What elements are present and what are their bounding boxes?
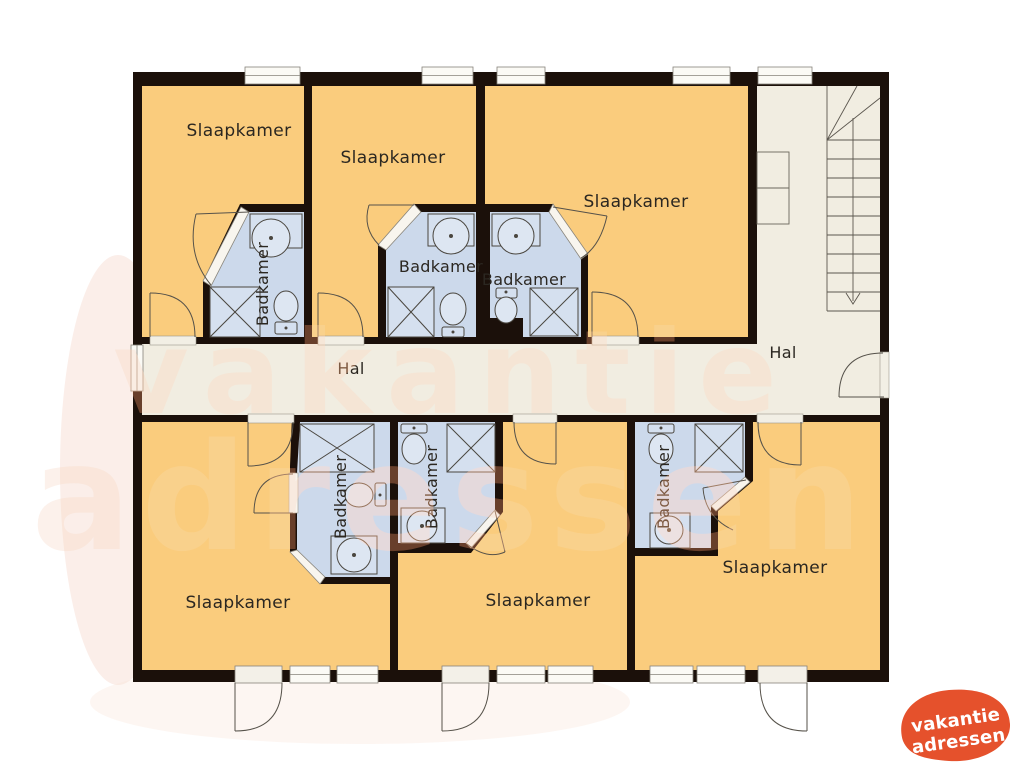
- floorplan-page: Slaapkamer Slaapkamer Slaapkamer Slaapka…: [0, 0, 1024, 768]
- bedroom-5-label: Slaapkamer: [485, 591, 590, 611]
- bedroom-6-label: Slaapkamer: [722, 558, 827, 578]
- bathroom-6-label: Badkamer: [654, 445, 673, 529]
- vakantieadressen-logo: vakantie adressen: [901, 690, 1010, 762]
- bedroom-3-label: Slaapkamer: [583, 192, 688, 212]
- bathroom-1-label: Badkamer: [253, 242, 272, 326]
- landing-hall-label: Hal: [769, 343, 796, 362]
- bathroom-3-label: Badkamer: [482, 270, 566, 289]
- toilet-symbol: [345, 483, 386, 507]
- toilet-symbol: [274, 291, 298, 334]
- toilet-symbol: [440, 293, 466, 337]
- shower-symbol: [695, 424, 743, 472]
- floorplan-drawing: Slaapkamer Slaapkamer Slaapkamer Slaapka…: [0, 0, 1024, 768]
- bedroom-1-label: Slaapkamer: [186, 121, 291, 141]
- bedroom-2-label: Slaapkamer: [340, 148, 445, 168]
- bathroom-2-label: Badkamer: [399, 257, 483, 276]
- shower-symbol: [530, 288, 578, 336]
- toilet-symbol: [495, 288, 517, 323]
- shower-symbol: [388, 287, 434, 337]
- bathroom-5-label: Badkamer: [422, 445, 441, 529]
- hall-label: Hal: [337, 359, 364, 378]
- bedroom-4-label: Slaapkamer: [185, 593, 290, 613]
- bathroom-4-label: Badkamer: [331, 455, 350, 539]
- shower-symbol: [447, 424, 495, 472]
